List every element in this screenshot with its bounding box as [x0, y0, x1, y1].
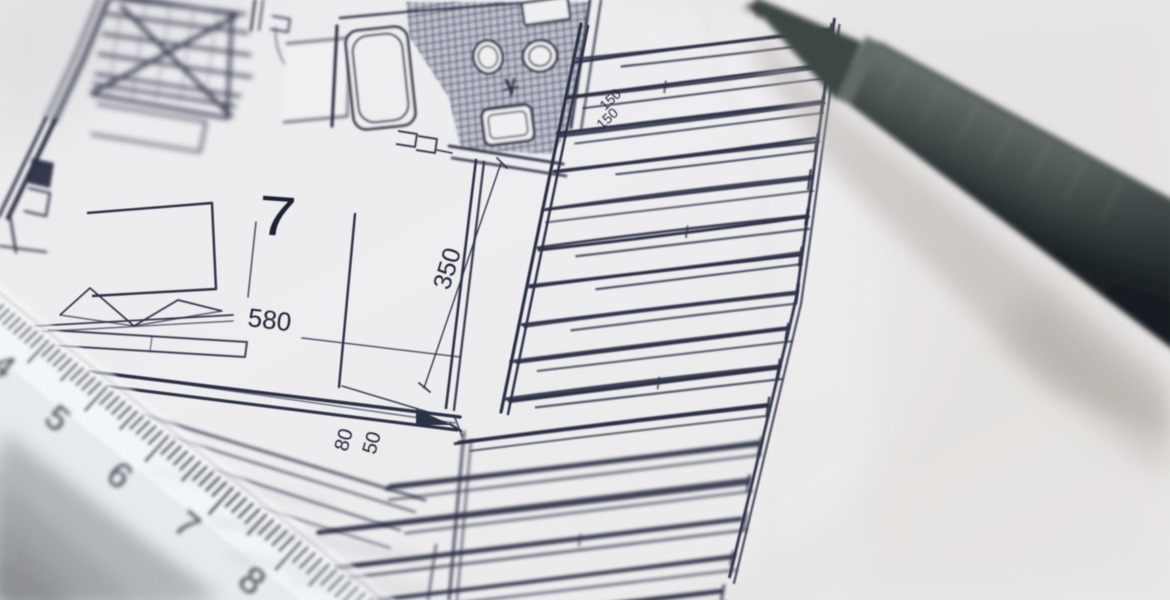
svg-text:580: 580: [246, 302, 293, 337]
svg-text:7: 7: [256, 184, 298, 249]
